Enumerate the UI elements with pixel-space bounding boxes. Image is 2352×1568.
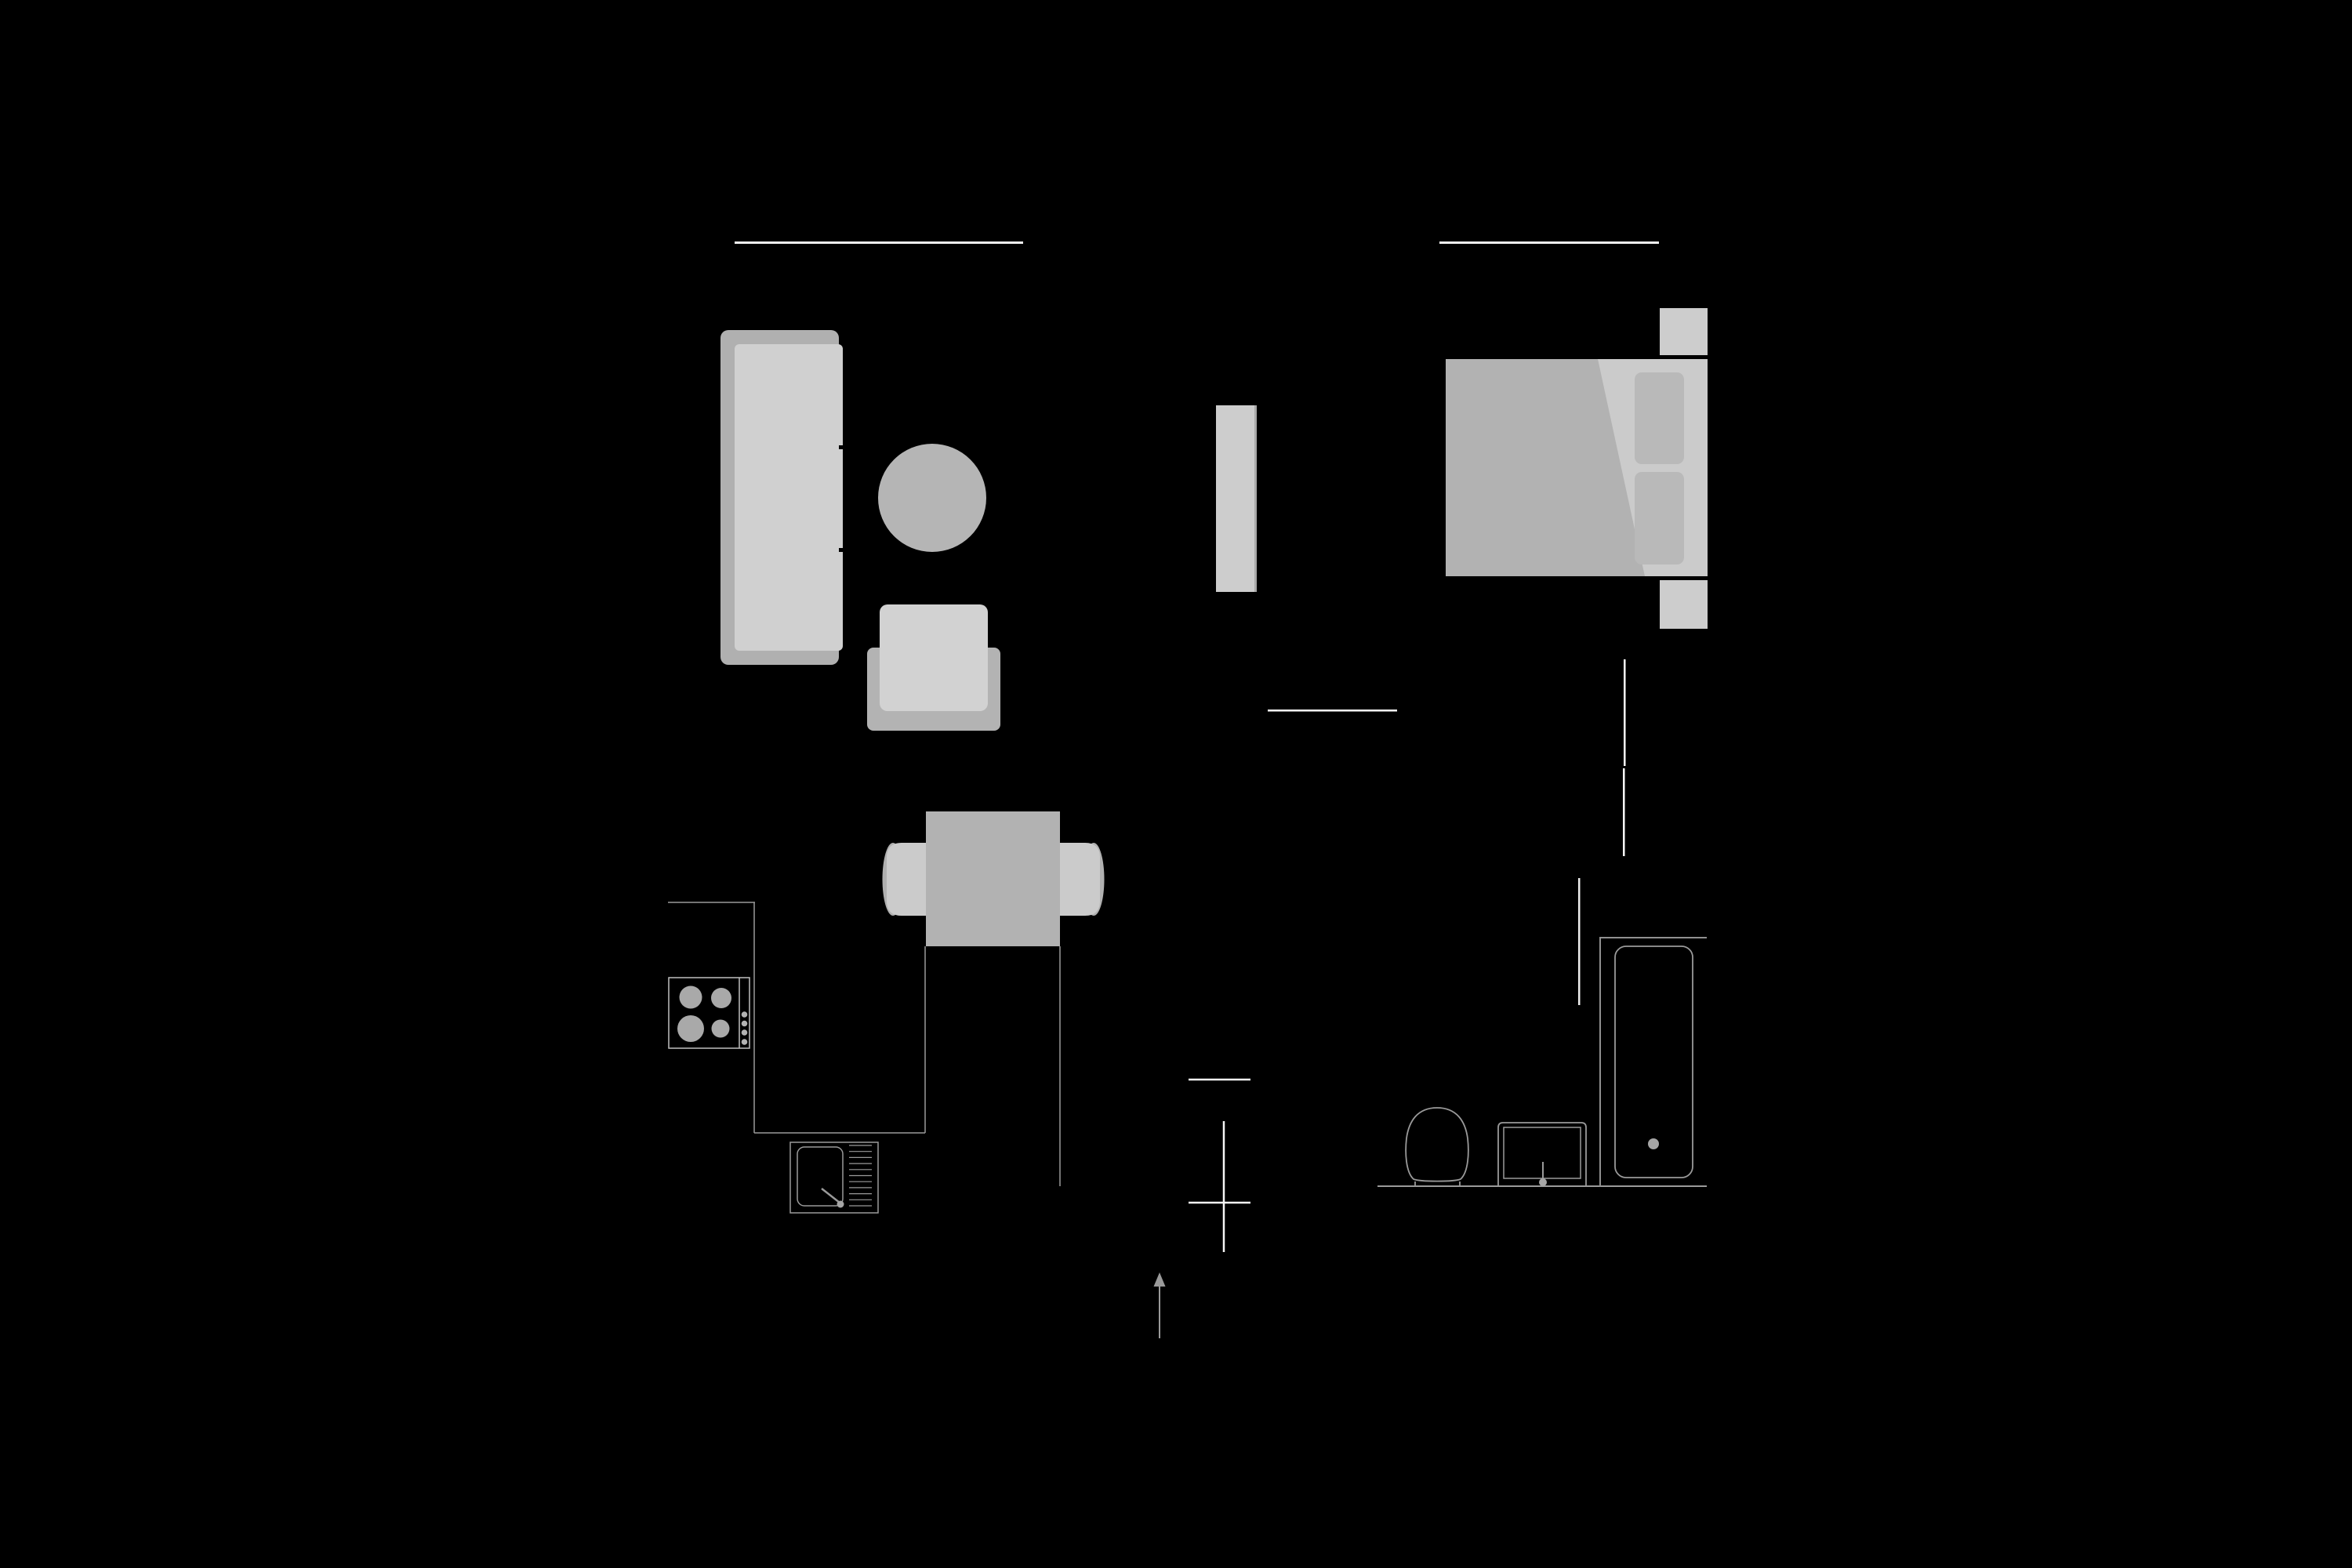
toilet-bowl [1406,1108,1468,1181]
window-lintel-right [1439,241,1659,244]
bed-pillow-lower [1635,472,1684,564]
sink-outline [790,1142,878,1213]
sofa-cushion-notch-upper [839,445,843,449]
stove-burner-bottom-left [677,1015,704,1042]
stove-knob-3 [742,1029,748,1036]
bed-pillow-upper [1635,372,1684,464]
wall-segment-hall [1268,710,1397,712]
sink-faucet-arm [822,1189,840,1203]
floor-plan-svg [0,0,2352,1568]
sofa-cushion-notch-lower [839,548,843,552]
wall-segment-bedroom-upper [1624,659,1626,766]
window-lintel-left [735,241,1023,244]
coffee-table [878,444,986,552]
sink-faucet-head [837,1201,844,1208]
sofa-seat [735,344,843,651]
stove-burner-top-left [680,986,702,1009]
floor-plan [0,0,2352,1568]
stove-knob-4 [742,1039,748,1045]
armchair-cushion [880,604,988,711]
wall-segment-bedroom-lower [1623,768,1625,856]
stove-knob-2 [742,1021,748,1027]
sink-basin [797,1147,843,1206]
dining-chair-left-seat [887,843,929,916]
nightstand-lower [1660,580,1708,629]
stove-burner-top-right [711,988,731,1008]
stove-outline [669,978,750,1048]
dining-chair-right-seat [1057,843,1100,916]
bathtub-drain [1648,1138,1659,1149]
dining-table [926,811,1060,946]
door-leaf-edge [1254,405,1257,592]
door-leaf [1216,405,1257,592]
stove-burner-bottom-right [712,1020,730,1038]
entrance-arrow-head [1154,1272,1166,1287]
nightstand-upper [1660,308,1708,355]
stove-knob-1 [742,1011,748,1018]
wall-segment-bath-entry [1578,878,1581,1005]
vanity-faucet-head [1539,1178,1547,1186]
